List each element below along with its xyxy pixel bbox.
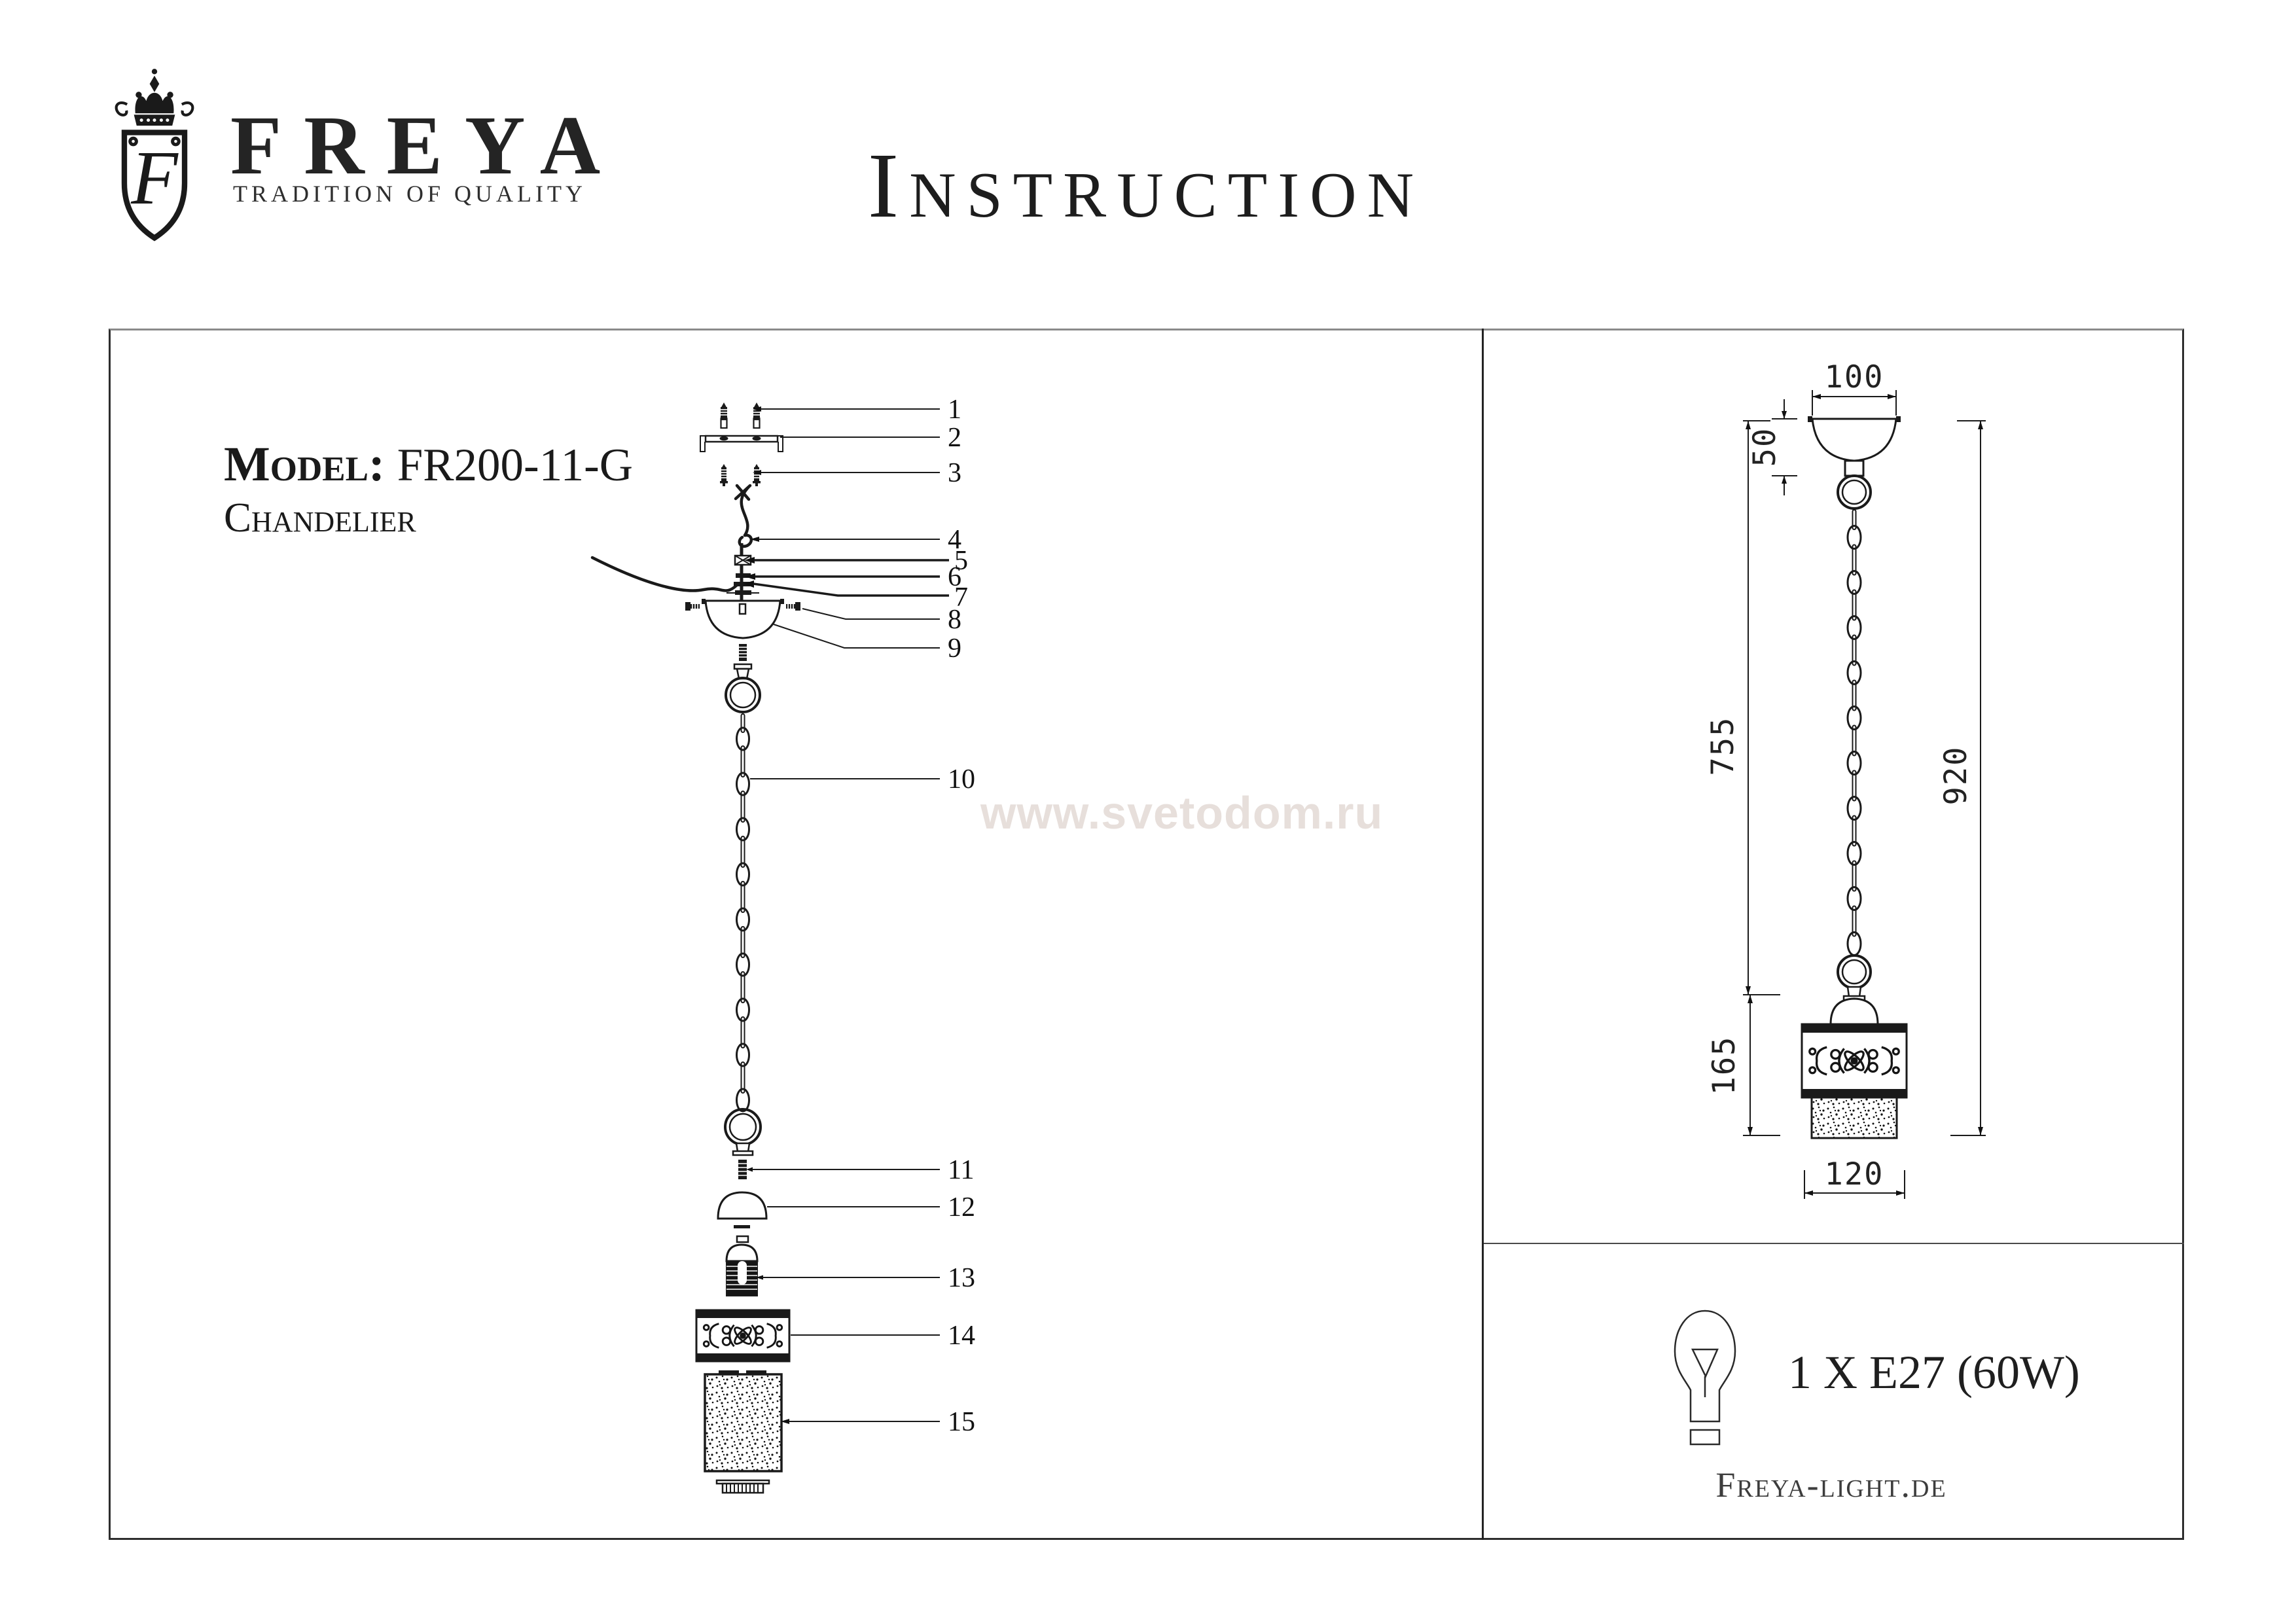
brand-name: FREYA bbox=[230, 103, 622, 187]
part-number-15: 15 bbox=[948, 1407, 975, 1437]
part-number-13: 13 bbox=[948, 1263, 975, 1293]
drawing-pendant bbox=[1802, 955, 1907, 1138]
top-ring bbox=[726, 664, 760, 712]
dim-canopy-width: 100 bbox=[1825, 359, 1884, 395]
dim-shade-width: 120 bbox=[1825, 1156, 1884, 1192]
bulb-icon bbox=[1649, 1306, 1754, 1463]
page-title: Instruction bbox=[868, 139, 1424, 232]
model-info: Model: FR200-11-G Chandelier bbox=[224, 437, 633, 541]
panel-divider-vertical bbox=[1482, 329, 1484, 1540]
website: Freya-light.de bbox=[1715, 1465, 1946, 1505]
model-type: Chandelier bbox=[224, 495, 633, 541]
part-number-8: 8 bbox=[948, 605, 961, 635]
wing-bar bbox=[726, 590, 759, 595]
model-value: FR200-11-G bbox=[397, 440, 633, 491]
part-number-10: 10 bbox=[948, 764, 975, 794]
part-canopy bbox=[702, 599, 784, 638]
part-number-9: 9 bbox=[948, 633, 961, 664]
part-number-14: 14 bbox=[948, 1321, 975, 1351]
dim-total-height: 920 bbox=[1938, 746, 1974, 806]
dim-chain-length: 755 bbox=[1705, 717, 1741, 776]
small-nut bbox=[737, 1236, 748, 1242]
part-glass-shade bbox=[705, 1370, 781, 1471]
leader-lines bbox=[744, 406, 949, 1424]
dim-shade-height-lines bbox=[1743, 995, 1780, 1135]
bulb-spec: 1 X E27 (60W) bbox=[1788, 1346, 2080, 1400]
dim-chain-length-lines bbox=[1743, 421, 1780, 995]
panel-divider-horizontal bbox=[1484, 1243, 2184, 1244]
part-socket bbox=[726, 1245, 757, 1296]
freya-crest-icon: F bbox=[99, 67, 209, 245]
bottom-cap bbox=[717, 1480, 769, 1493]
part-screws bbox=[720, 464, 761, 486]
dimension-diagram: 100 50 755 920 bbox=[1676, 353, 2042, 1230]
page: { "logo": { "monogram": "F", "brand": "F… bbox=[0, 0, 2296, 1623]
drawing-canopy bbox=[1808, 416, 1901, 508]
threaded-nipple-top bbox=[738, 644, 748, 661]
part-chain bbox=[737, 714, 749, 1111]
dim-shade-height: 165 bbox=[1706, 1036, 1742, 1096]
small-washer bbox=[734, 1225, 750, 1228]
dim-canopy-height: 50 bbox=[1747, 427, 1783, 467]
part-ornament-band bbox=[696, 1310, 789, 1361]
part-number-12: 12 bbox=[948, 1192, 975, 1222]
part-anchor-bolts bbox=[719, 402, 761, 428]
part-cable-hook bbox=[736, 486, 751, 546]
drawing-chain bbox=[1848, 510, 1861, 955]
watermark: www.svetodom.ru bbox=[980, 787, 1383, 839]
part-mounting-bracket bbox=[700, 436, 783, 452]
bottom-ring bbox=[725, 1109, 761, 1155]
brand-tagline: TRADITION OF QUALITY bbox=[233, 182, 586, 205]
part-number-3: 3 bbox=[948, 458, 961, 488]
part-number-2: 2 bbox=[948, 423, 961, 453]
brand-monogram: F bbox=[130, 136, 179, 221]
exploded-diagram: 1 2 3 4 5 6 7 8 9 10 11 12 13 14 15 bbox=[655, 366, 1021, 1518]
part-dome-cap bbox=[718, 1192, 766, 1219]
model-label: Model: bbox=[224, 437, 385, 491]
part-number-11: 11 bbox=[948, 1155, 974, 1185]
part-number-1: 1 bbox=[948, 395, 961, 425]
